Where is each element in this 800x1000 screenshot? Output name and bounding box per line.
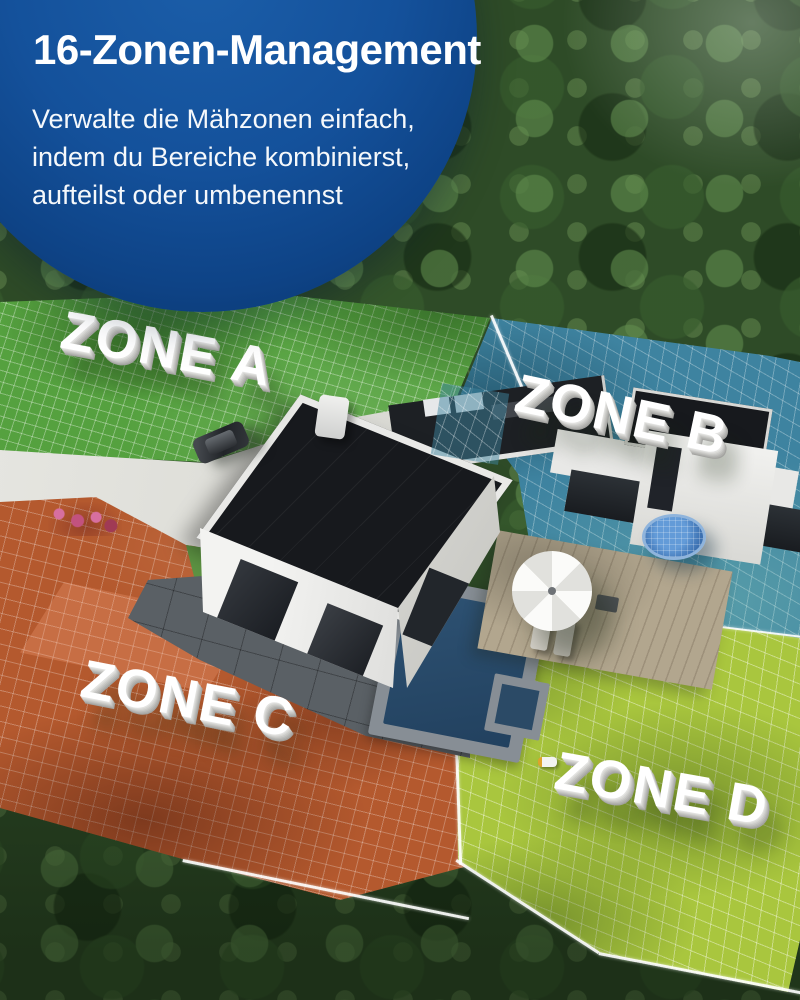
flower-bed — [48, 502, 122, 536]
badge-copy-line-3: aufteilst oder umbenennst — [32, 176, 415, 214]
badge-copy-line-2: indem du Bereiche kombinierst, — [32, 138, 415, 176]
umbrella-pole — [548, 587, 556, 595]
spa-water — [495, 684, 540, 731]
robot-mower — [538, 757, 557, 767]
car-windshield — [204, 429, 238, 456]
badge-copy-line-1: Verwalte die Mähzonen einfach, — [32, 100, 415, 138]
badge-copy: Verwalte die Mähzonen einfach, indem du … — [32, 100, 415, 214]
scene-root: ZONE A ZONE B ZONE C ZONE D 16-Zonen-Man… — [0, 0, 800, 1000]
atmospheric-haze — [560, 0, 800, 190]
patio-umbrella — [512, 551, 592, 631]
pool-spa — [484, 673, 550, 741]
trampoline — [642, 514, 706, 560]
zone-b-roof-overlap — [431, 383, 509, 465]
white-vehicle — [314, 394, 350, 440]
badge-title: 16-Zonen-Management — [33, 26, 481, 74]
